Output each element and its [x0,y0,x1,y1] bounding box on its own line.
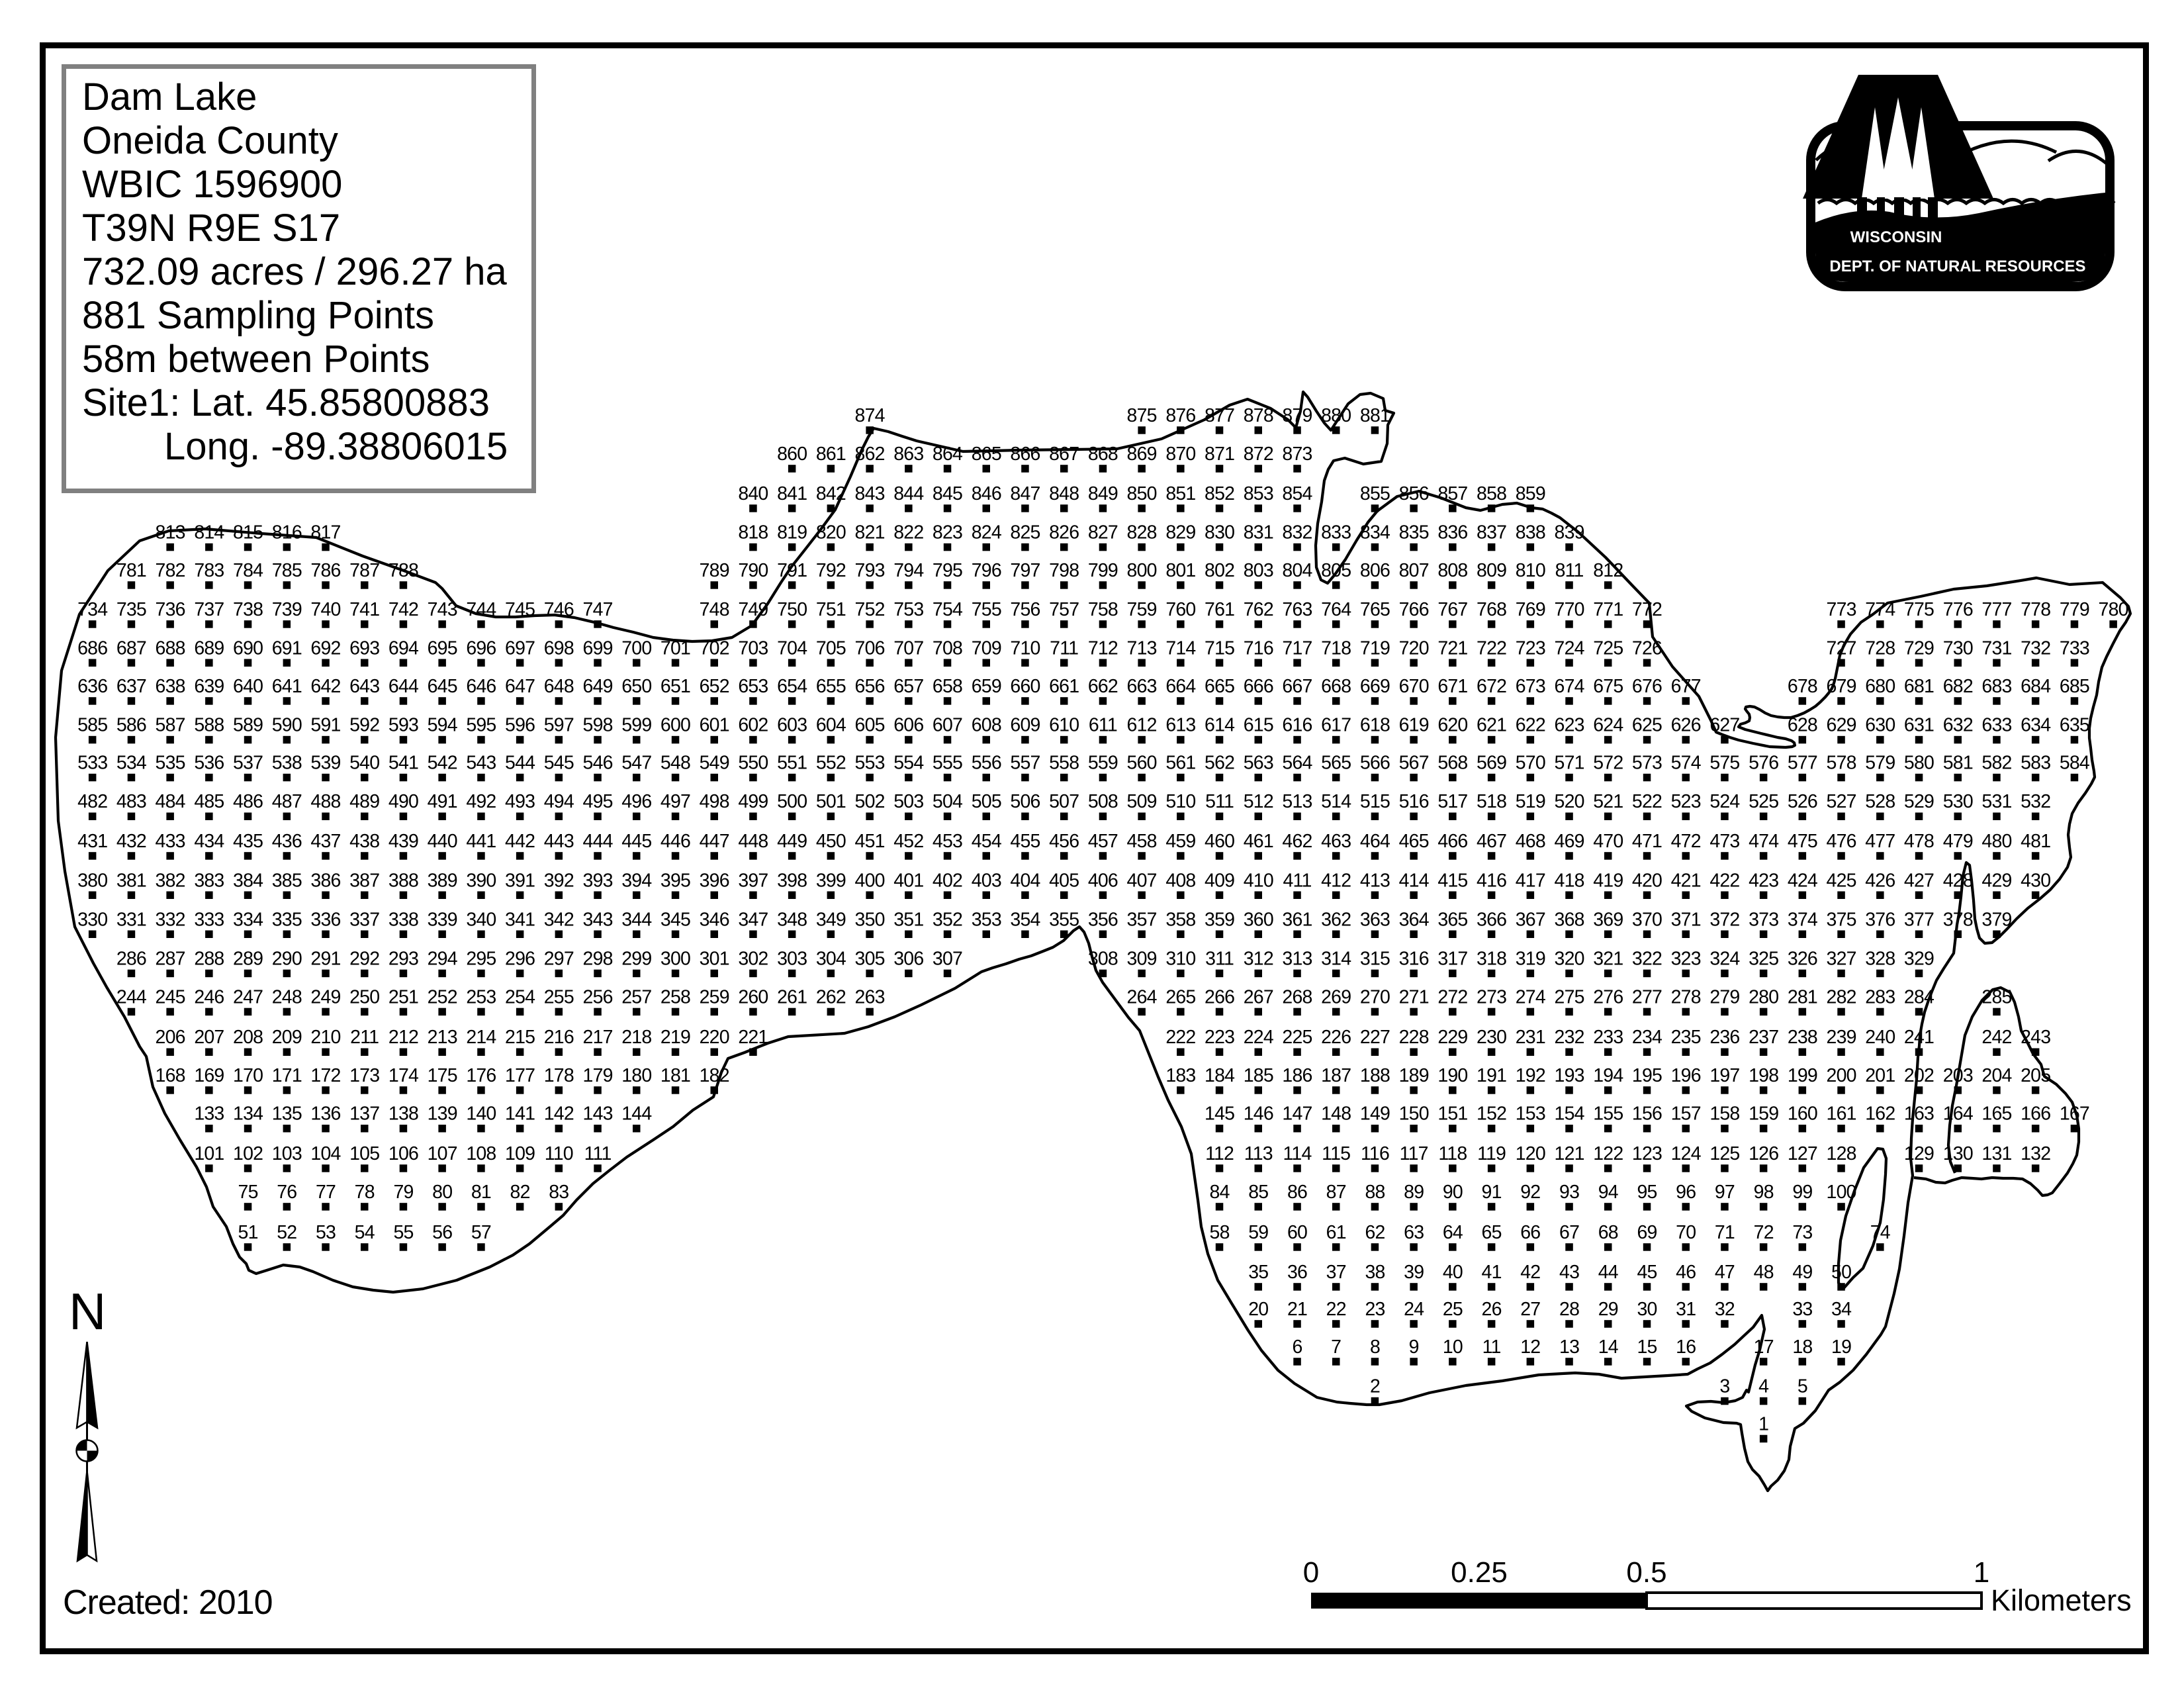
svg-text:696: 696 [466,637,496,659]
svg-text:822: 822 [893,522,923,543]
svg-text:744: 744 [466,599,496,620]
svg-text:701: 701 [660,637,690,659]
svg-text:274: 274 [1516,986,1546,1008]
svg-text:481: 481 [2021,831,2050,852]
svg-text:251: 251 [388,986,418,1008]
svg-text:391: 391 [505,870,535,891]
svg-text:328: 328 [1865,948,1895,969]
svg-text:418: 418 [1555,870,1584,891]
svg-text:577: 577 [1788,753,1817,774]
svg-text:126: 126 [1749,1143,1778,1164]
svg-text:396: 396 [700,870,729,891]
svg-text:642: 642 [310,676,340,697]
svg-text:721: 721 [1437,637,1467,659]
svg-text:578: 578 [1827,753,1856,774]
svg-text:131: 131 [1981,1143,2011,1164]
svg-text:140: 140 [466,1103,496,1125]
svg-text:33: 33 [1792,1299,1812,1320]
svg-text:815: 815 [233,522,263,543]
svg-text:724: 724 [1555,637,1585,659]
svg-text:649: 649 [583,676,613,697]
svg-text:205: 205 [2021,1065,2050,1086]
svg-text:4: 4 [1758,1376,1769,1397]
svg-text:655: 655 [816,676,846,697]
svg-text:505: 505 [972,791,1001,812]
svg-text:402: 402 [933,870,962,891]
svg-text:809: 809 [1477,560,1506,581]
svg-text:703: 703 [738,637,768,659]
svg-text:705: 705 [816,637,846,659]
svg-text:879: 879 [1282,405,1312,426]
svg-text:766: 766 [1399,599,1429,620]
svg-text:192: 192 [1516,1065,1545,1086]
svg-text:302: 302 [738,948,768,969]
svg-text:276: 276 [1593,986,1623,1008]
svg-text:507: 507 [1049,791,1079,812]
svg-text:35: 35 [1248,1262,1268,1283]
svg-text:522: 522 [1632,791,1662,812]
svg-text:159: 159 [1749,1103,1778,1125]
svg-text:494: 494 [544,791,574,812]
svg-text:187: 187 [1321,1065,1351,1086]
svg-text:477: 477 [1865,831,1895,852]
svg-text:268: 268 [1282,986,1312,1008]
svg-text:121: 121 [1555,1143,1584,1164]
svg-text:348: 348 [777,909,807,930]
svg-text:569: 569 [1477,753,1506,774]
svg-text:571: 571 [1555,753,1584,774]
svg-text:833: 833 [1321,522,1351,543]
svg-text:105: 105 [349,1143,379,1164]
svg-text:232: 232 [1555,1027,1584,1048]
svg-text:573: 573 [1632,753,1662,774]
svg-text:279: 279 [1709,986,1739,1008]
svg-text:745: 745 [505,599,535,620]
svg-text:321: 321 [1593,948,1623,969]
svg-text:142: 142 [544,1103,574,1125]
svg-text:285: 285 [1981,986,2011,1008]
svg-text:64: 64 [1443,1222,1463,1243]
svg-text:590: 590 [272,715,302,736]
svg-text:711: 711 [1050,637,1078,659]
svg-text:382: 382 [156,870,185,891]
svg-text:152: 152 [1477,1103,1506,1125]
svg-text:218: 218 [621,1027,651,1048]
svg-text:363: 363 [1360,909,1390,930]
svg-text:484: 484 [156,791,186,812]
svg-text:365: 365 [1437,909,1467,930]
svg-text:225: 225 [1282,1027,1312,1048]
svg-text:148: 148 [1321,1103,1351,1125]
svg-text:220: 220 [700,1027,729,1048]
svg-text:501: 501 [816,791,846,812]
svg-text:659: 659 [972,676,1001,697]
svg-text:502: 502 [855,791,885,812]
svg-text:566: 566 [1360,753,1390,774]
svg-text:252: 252 [428,986,457,1008]
svg-text:102: 102 [233,1143,263,1164]
svg-text:519: 519 [1516,791,1545,812]
svg-text:457: 457 [1088,831,1118,852]
svg-text:612: 612 [1127,715,1157,736]
svg-text:54: 54 [355,1222,375,1243]
svg-text:720: 720 [1399,637,1429,659]
svg-text:239: 239 [1827,1027,1856,1048]
svg-text:231: 231 [1516,1027,1545,1048]
svg-text:851: 851 [1165,483,1195,504]
svg-text:574: 574 [1671,753,1702,774]
svg-text:853: 853 [1244,483,1273,504]
svg-text:799: 799 [1088,560,1118,581]
svg-text:757: 757 [1049,599,1079,620]
svg-text:202: 202 [1904,1065,1934,1086]
svg-text:250: 250 [349,986,379,1008]
svg-text:145: 145 [1205,1103,1234,1125]
svg-text:420: 420 [1632,870,1662,891]
svg-text:395: 395 [660,870,690,891]
svg-text:768: 768 [1477,599,1506,620]
svg-text:392: 392 [544,870,574,891]
svg-text:13: 13 [1559,1336,1579,1358]
svg-text:634: 634 [2021,715,2051,736]
svg-text:584: 584 [2060,753,2090,774]
svg-text:298: 298 [583,948,613,969]
svg-text:581: 581 [1943,753,1973,774]
svg-text:777: 777 [1981,599,2011,620]
svg-text:771: 771 [1593,599,1623,620]
svg-text:184: 184 [1205,1065,1235,1086]
svg-text:462: 462 [1282,831,1312,852]
svg-text:449: 449 [777,831,807,852]
svg-text:787: 787 [349,560,379,581]
svg-text:579: 579 [1865,753,1895,774]
svg-text:114: 114 [1283,1143,1312,1164]
svg-text:208: 208 [233,1027,263,1048]
svg-text:856: 856 [1399,483,1429,504]
svg-text:607: 607 [933,715,962,736]
svg-text:694: 694 [388,637,419,659]
svg-text:740: 740 [310,599,340,620]
svg-text:848: 848 [1049,483,1079,504]
svg-text:471: 471 [1632,831,1662,852]
svg-text:600: 600 [660,715,690,736]
svg-text:618: 618 [1360,715,1390,736]
svg-text:153: 153 [1516,1103,1545,1125]
svg-text:349: 349 [816,909,846,930]
svg-text:119: 119 [1477,1143,1506,1164]
svg-text:76: 76 [277,1182,296,1203]
svg-text:209: 209 [272,1027,302,1048]
svg-text:92: 92 [1520,1182,1540,1203]
svg-text:157: 157 [1671,1103,1701,1125]
svg-text:423: 423 [1749,870,1778,891]
svg-text:254: 254 [505,986,535,1008]
svg-text:1: 1 [1974,1556,1989,1589]
svg-text:37: 37 [1326,1262,1346,1283]
svg-text:169: 169 [194,1065,224,1086]
svg-text:196: 196 [1671,1065,1701,1086]
svg-text:78: 78 [355,1182,375,1203]
svg-text:367: 367 [1516,909,1545,930]
svg-text:803: 803 [1244,560,1273,581]
svg-text:398: 398 [777,870,807,891]
svg-text:713: 713 [1127,637,1157,659]
svg-text:149: 149 [1360,1103,1390,1125]
svg-text:729: 729 [1904,637,1934,659]
svg-text:65: 65 [1482,1222,1502,1243]
svg-text:769: 769 [1516,599,1545,620]
svg-text:419: 419 [1593,870,1623,891]
svg-text:580: 580 [1904,753,1934,774]
svg-text:385: 385 [272,870,302,891]
svg-text:144: 144 [621,1103,652,1125]
svg-text:176: 176 [466,1065,496,1086]
svg-text:546: 546 [583,753,613,774]
svg-text:311: 311 [1205,948,1234,969]
svg-text:386: 386 [310,870,340,891]
svg-text:485: 485 [194,791,224,812]
svg-text:537: 537 [233,753,263,774]
svg-text:491: 491 [428,791,457,812]
svg-text:45: 45 [1637,1262,1657,1283]
svg-text:836: 836 [1437,522,1467,543]
svg-text:563: 563 [1244,753,1273,774]
svg-text:555: 555 [933,753,962,774]
svg-text:526: 526 [1788,791,1817,812]
svg-text:451: 451 [855,831,885,852]
svg-text:811: 811 [1555,560,1584,581]
svg-text:N: N [69,1282,106,1340]
svg-text:523: 523 [1671,791,1701,812]
svg-text:748: 748 [700,599,729,620]
svg-text:108: 108 [466,1143,496,1164]
svg-text:307: 307 [933,948,962,969]
svg-text:397: 397 [738,870,768,891]
svg-text:1: 1 [1758,1413,1768,1434]
svg-text:147: 147 [1282,1103,1312,1125]
svg-text:608: 608 [972,715,1001,736]
svg-text:186: 186 [1282,1065,1312,1086]
svg-text:247: 247 [233,986,263,1008]
svg-text:96: 96 [1676,1182,1696,1203]
svg-text:732: 732 [2021,637,2050,659]
svg-text:223: 223 [1205,1027,1234,1048]
svg-text:227: 227 [1360,1027,1390,1048]
svg-text:454: 454 [972,831,1002,852]
svg-text:230: 230 [1477,1027,1506,1048]
svg-text:172: 172 [310,1065,340,1086]
svg-text:165: 165 [1981,1103,2011,1125]
svg-text:511: 511 [1205,791,1234,812]
svg-text:166: 166 [2021,1103,2050,1125]
svg-text:310: 310 [1165,948,1195,969]
svg-text:296: 296 [505,948,535,969]
svg-text:687: 687 [116,637,146,659]
svg-text:447: 447 [700,831,729,852]
svg-text:248: 248 [272,986,302,1008]
svg-text:475: 475 [1788,831,1817,852]
svg-text:631: 631 [1904,715,1934,736]
svg-text:784: 784 [233,560,263,581]
svg-text:94: 94 [1598,1182,1619,1203]
svg-text:264: 264 [1127,986,1158,1008]
svg-text:840: 840 [738,483,768,504]
svg-text:849: 849 [1088,483,1118,504]
svg-text:424: 424 [1788,870,1818,891]
svg-text:339: 339 [428,909,457,930]
svg-text:754: 754 [933,599,963,620]
svg-text:626: 626 [1671,715,1701,736]
svg-text:525: 525 [1749,791,1778,812]
svg-text:691: 691 [272,637,302,659]
svg-text:656: 656 [855,676,885,697]
svg-text:776: 776 [1943,599,1973,620]
svg-text:800: 800 [1127,560,1157,581]
svg-text:48: 48 [1754,1262,1774,1283]
svg-text:362: 362 [1321,909,1351,930]
svg-text:820: 820 [816,522,846,543]
svg-text:201: 201 [1865,1065,1895,1086]
svg-text:829: 829 [1165,522,1195,543]
svg-text:433: 433 [156,831,185,852]
svg-text:195: 195 [1632,1065,1662,1086]
svg-text:664: 664 [1165,676,1196,697]
svg-text:130: 130 [1943,1143,1973,1164]
svg-text:443: 443 [544,831,574,852]
svg-text:560: 560 [1127,753,1157,774]
svg-text:414: 414 [1399,870,1430,891]
svg-text:640: 640 [233,676,263,697]
svg-text:104: 104 [310,1143,341,1164]
svg-text:839: 839 [1555,522,1584,543]
svg-text:370: 370 [1632,909,1662,930]
svg-text:197: 197 [1709,1065,1739,1086]
svg-text:461: 461 [1244,831,1273,852]
svg-text:437: 437 [310,831,340,852]
svg-text:610: 610 [1049,715,1079,736]
svg-text:535: 535 [156,753,185,774]
svg-text:100: 100 [1827,1182,1856,1203]
svg-text:141: 141 [505,1103,535,1125]
svg-text:93: 93 [1559,1182,1579,1203]
svg-text:436: 436 [272,831,302,852]
svg-text:880: 880 [1321,405,1351,426]
svg-text:759: 759 [1127,599,1157,620]
svg-text:623: 623 [1555,715,1584,736]
svg-text:615: 615 [1244,715,1273,736]
svg-text:556: 556 [972,753,1001,774]
svg-text:381: 381 [116,870,146,891]
svg-text:272: 272 [1437,986,1467,1008]
svg-text:733: 733 [2060,637,2089,659]
svg-text:597: 597 [544,715,574,736]
svg-text:216: 216 [544,1027,574,1048]
svg-text:Dam Lake: Dam Lake [82,75,257,118]
svg-text:545: 545 [544,753,574,774]
svg-text:265: 265 [1165,986,1195,1008]
svg-text:764: 764 [1321,599,1351,620]
svg-text:823: 823 [933,522,962,543]
svg-text:353: 353 [972,909,1001,930]
svg-text:715: 715 [1205,637,1234,659]
svg-text:743: 743 [428,599,457,620]
svg-text:139: 139 [428,1103,457,1125]
svg-text:512: 512 [1244,791,1273,812]
svg-text:241: 241 [1904,1027,1934,1048]
svg-text:802: 802 [1205,560,1234,581]
svg-text:17: 17 [1754,1336,1774,1358]
svg-text:23: 23 [1365,1299,1385,1320]
svg-text:162: 162 [1865,1103,1895,1125]
svg-text:222: 222 [1165,1027,1195,1048]
svg-text:329: 329 [1904,948,1934,969]
svg-text:676: 676 [1632,676,1662,697]
svg-text:594: 594 [428,715,458,736]
svg-text:178: 178 [544,1065,574,1086]
svg-text:212: 212 [388,1027,418,1048]
svg-text:364: 364 [1399,909,1430,930]
svg-text:858: 858 [1477,483,1506,504]
svg-text:772: 772 [1632,599,1662,620]
svg-text:782: 782 [156,560,185,581]
svg-text:355: 355 [1049,909,1079,930]
svg-text:464: 464 [1360,831,1390,852]
svg-text:643: 643 [349,676,379,697]
svg-text:282: 282 [1827,986,1856,1008]
svg-text:226: 226 [1321,1027,1351,1048]
svg-text:665: 665 [1205,676,1234,697]
svg-text:804: 804 [1282,560,1312,581]
svg-text:DEPT. OF NATURAL RESOURCES: DEPT. OF NATURAL RESOURCES [1829,258,2085,275]
svg-text:194: 194 [1593,1065,1623,1086]
svg-text:146: 146 [1244,1103,1273,1125]
svg-text:621: 621 [1477,715,1506,736]
svg-text:58m between Points: 58m between Points [82,338,430,381]
svg-text:333: 333 [194,909,224,930]
svg-text:404: 404 [1010,870,1040,891]
svg-text:548: 548 [660,753,690,774]
svg-text:290: 290 [272,948,302,969]
svg-text:346: 346 [700,909,729,930]
svg-text:413: 413 [1360,870,1390,891]
svg-text:WBIC 1596900: WBIC 1596900 [82,163,342,206]
svg-text:752: 752 [855,599,885,620]
svg-text:128: 128 [1827,1143,1856,1164]
svg-text:824: 824 [972,522,1002,543]
svg-text:807: 807 [1399,560,1429,581]
svg-text:543: 543 [466,753,496,774]
svg-text:343: 343 [583,909,613,930]
svg-text:810: 810 [1516,560,1545,581]
svg-text:15: 15 [1637,1336,1657,1358]
svg-text:403: 403 [972,870,1001,891]
svg-text:609: 609 [1010,715,1040,736]
svg-text:240: 240 [1865,1027,1895,1048]
svg-text:39: 39 [1404,1262,1424,1283]
svg-text:191: 191 [1477,1065,1506,1086]
svg-text:688: 688 [156,637,185,659]
svg-text:476: 476 [1827,831,1856,852]
svg-text:351: 351 [893,909,923,930]
svg-text:620: 620 [1437,715,1467,736]
svg-text:616: 616 [1282,715,1312,736]
svg-text:61: 61 [1326,1222,1346,1243]
svg-text:301: 301 [700,948,729,969]
svg-text:857: 857 [1437,483,1467,504]
svg-text:213: 213 [428,1027,457,1048]
svg-text:629: 629 [1827,715,1856,736]
svg-text:315: 315 [1360,948,1390,969]
